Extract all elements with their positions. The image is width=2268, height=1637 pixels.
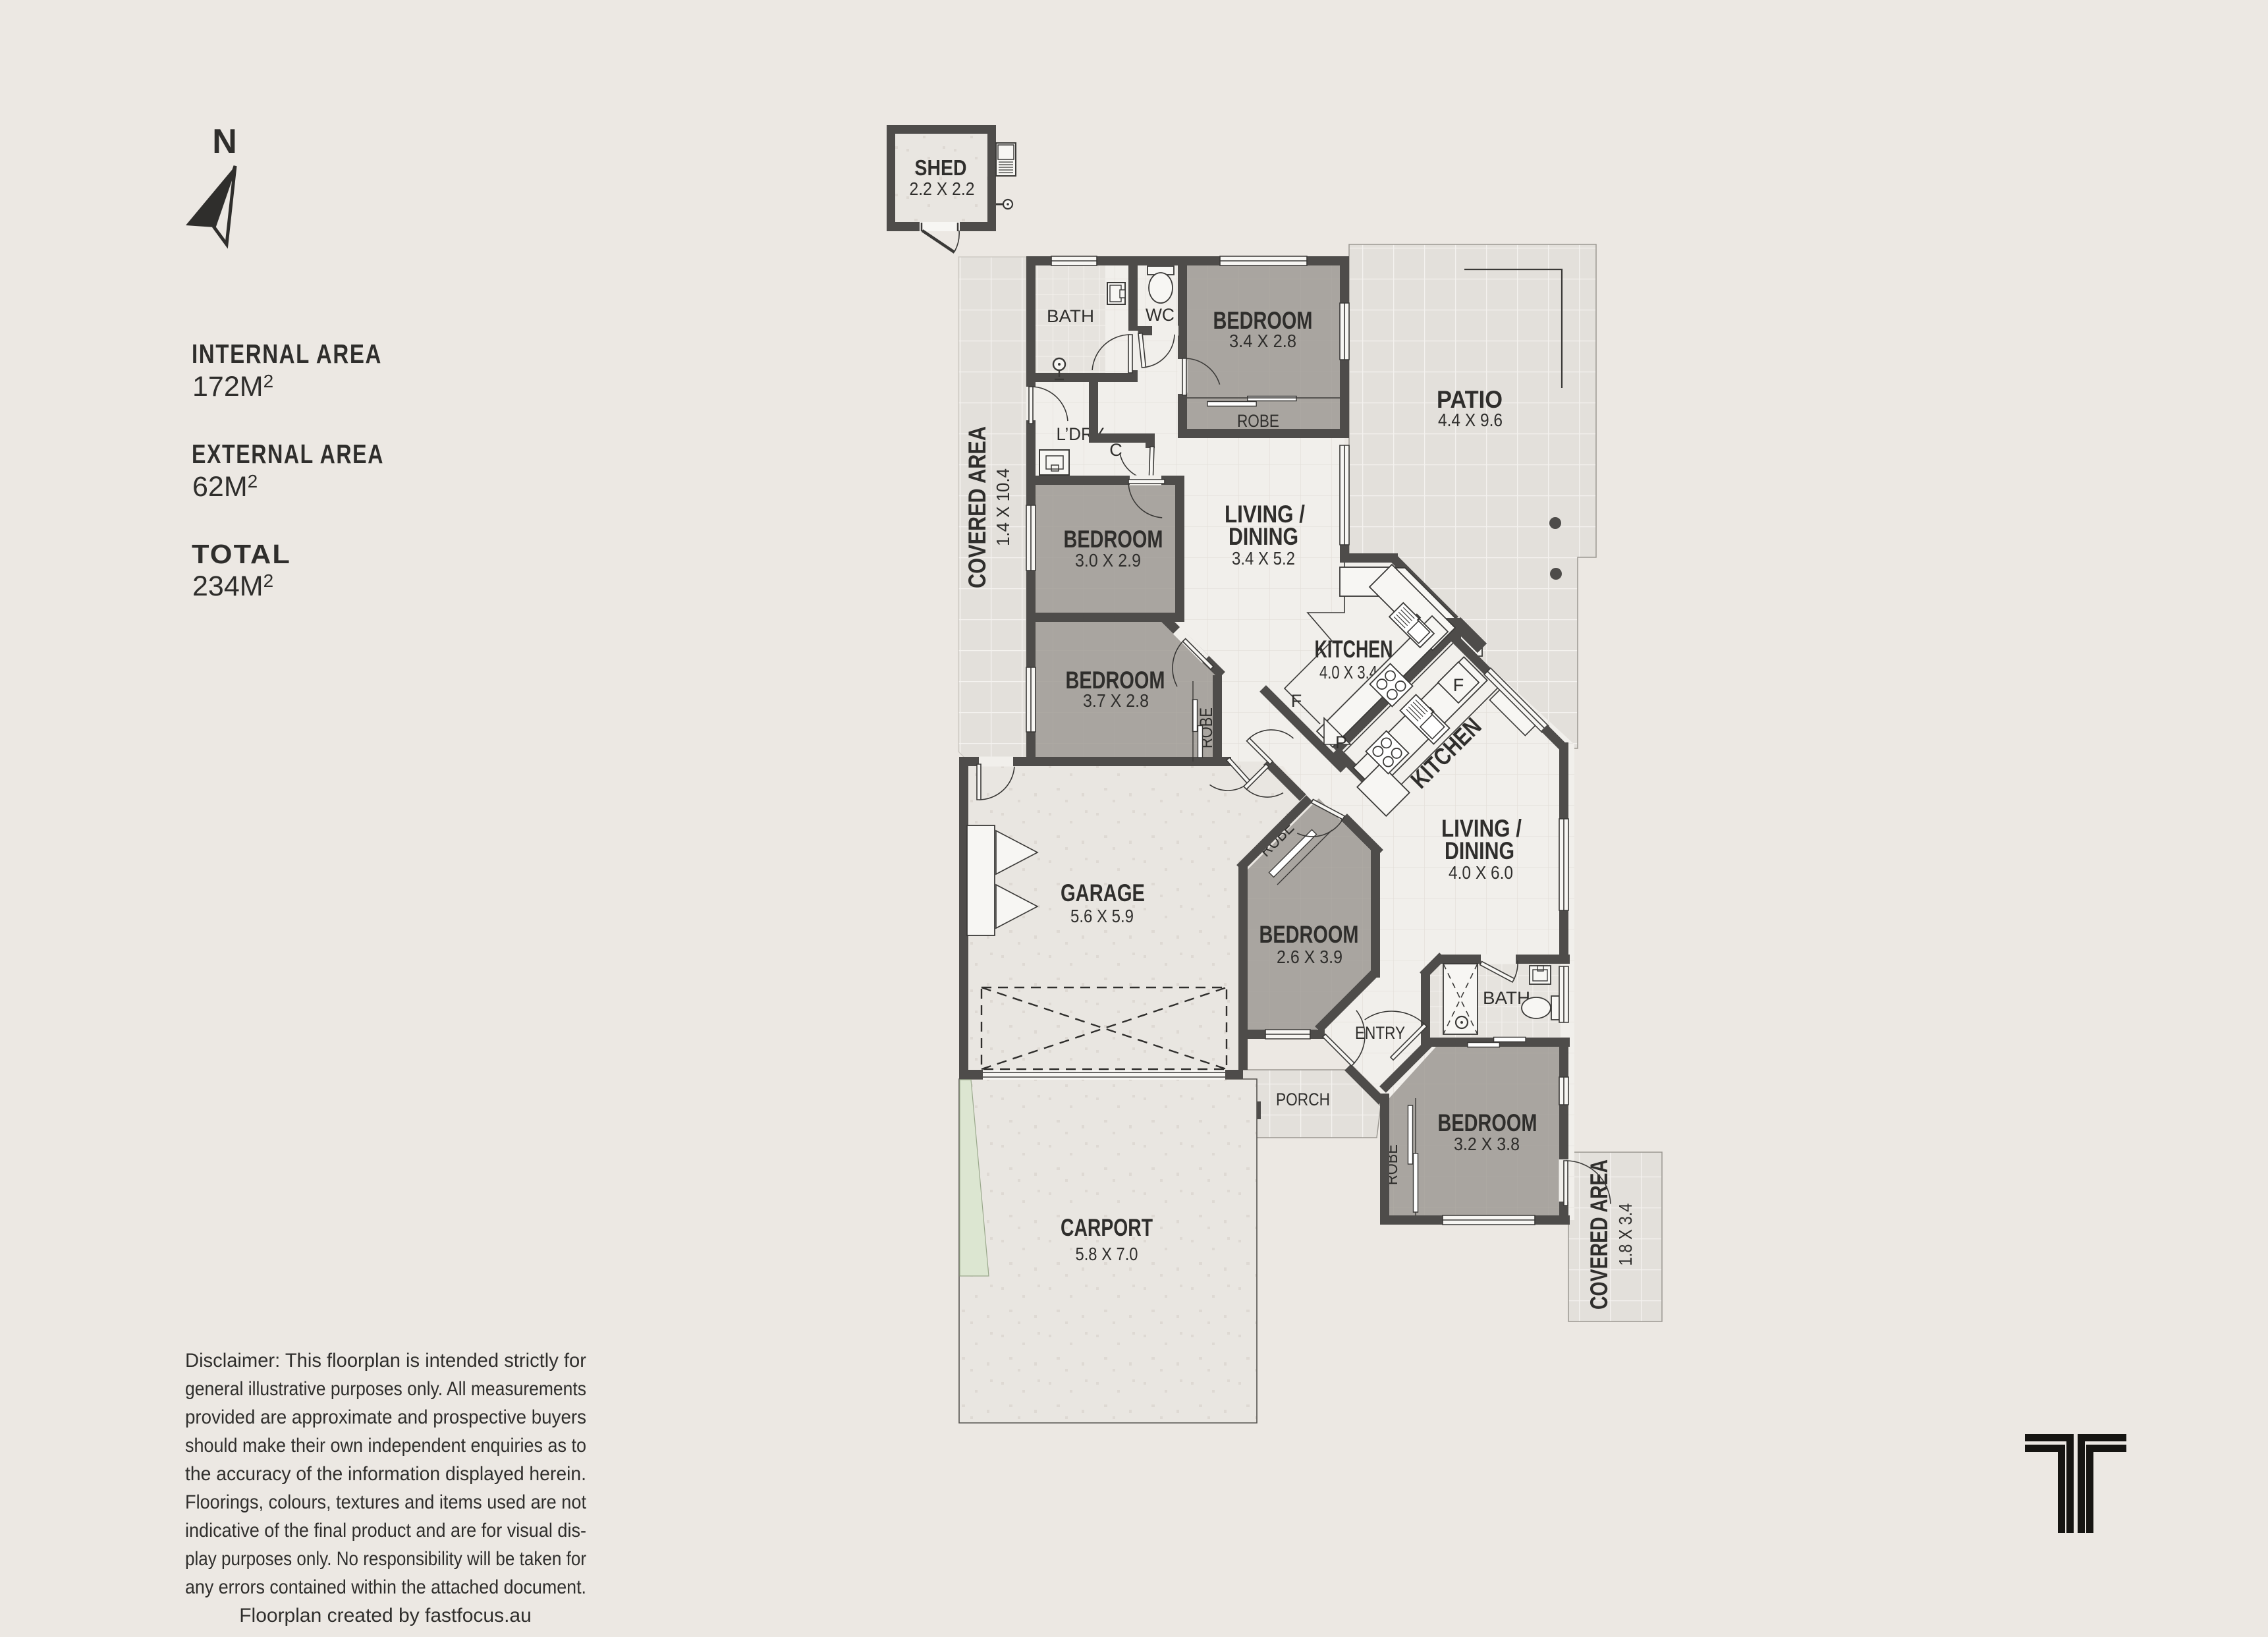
svg-text:F: F bbox=[1291, 691, 1302, 711]
svg-text:PATIO: PATIO bbox=[1437, 386, 1503, 413]
svg-text:KITCHEN: KITCHEN bbox=[1315, 636, 1393, 663]
svg-text:Floorings, colours, textures a: Floorings, colours, textures and items u… bbox=[185, 1491, 587, 1513]
svg-text:PORCH: PORCH bbox=[1276, 1090, 1330, 1109]
svg-text:2.6 X 3.9: 2.6 X 3.9 bbox=[1277, 947, 1342, 967]
svg-text:N: N bbox=[212, 123, 237, 161]
svg-text:the accuracy of the informatio: the accuracy of the information displaye… bbox=[185, 1463, 586, 1485]
svg-text:play purposes only. No respons: play purposes only. No responsibility wi… bbox=[185, 1548, 586, 1570]
svg-text:3.7 X 2.8: 3.7 X 2.8 bbox=[1083, 690, 1149, 711]
svg-text:4.4 X 9.6: 4.4 X 9.6 bbox=[1438, 410, 1503, 430]
svg-text:172M2: 172M2 bbox=[192, 371, 273, 402]
svg-text:should make their own independ: should make their own independent enquir… bbox=[185, 1435, 586, 1457]
svg-text:Floorplan created by fastfocus: Floorplan created by fastfocus.au bbox=[239, 1605, 532, 1626]
svg-text:P: P bbox=[1335, 733, 1347, 752]
svg-text:SHED: SHED bbox=[915, 155, 967, 180]
svg-text:F: F bbox=[1453, 675, 1464, 695]
svg-text:provided are approximate and p: provided are approximate and prospective… bbox=[185, 1406, 586, 1428]
svg-text:DINING: DINING bbox=[1445, 837, 1514, 864]
svg-text:COVERED AREA: COVERED AREA bbox=[1586, 1159, 1613, 1310]
svg-text:5.6 X 5.9: 5.6 X 5.9 bbox=[1070, 906, 1134, 926]
svg-text:TOTAL: TOTAL bbox=[192, 539, 291, 569]
svg-text:3.4 X 2.8: 3.4 X 2.8 bbox=[1229, 331, 1296, 351]
svg-text:5.8 X 7.0: 5.8 X 7.0 bbox=[1076, 1244, 1138, 1264]
svg-text:BEDROOM: BEDROOM bbox=[1438, 1109, 1537, 1136]
svg-text:1.8 X 3.4: 1.8 X 3.4 bbox=[1615, 1204, 1636, 1266]
svg-text:BEDROOM: BEDROOM bbox=[1259, 921, 1359, 948]
svg-text:DINING: DINING bbox=[1229, 523, 1298, 550]
svg-text:2.2 X 2.2: 2.2 X 2.2 bbox=[910, 179, 975, 199]
svg-text:1.4 X 10.4: 1.4 X 10.4 bbox=[993, 468, 1013, 546]
svg-text:INTERNAL AREA: INTERNAL AREA bbox=[192, 339, 382, 369]
svg-text:3.2 X 3.8: 3.2 X 3.8 bbox=[1454, 1134, 1520, 1154]
svg-text:Disclaimer: This floorplan is: Disclaimer: This floorplan is intended s… bbox=[185, 1350, 586, 1372]
svg-text:BEDROOM: BEDROOM bbox=[1213, 307, 1313, 334]
svg-text:ENTRY: ENTRY bbox=[1355, 1023, 1405, 1043]
svg-text:BATH: BATH bbox=[1047, 306, 1094, 326]
svg-text:BEDROOM: BEDROOM bbox=[1066, 667, 1165, 694]
svg-text:3.4 X 5.2: 3.4 X 5.2 bbox=[1232, 548, 1295, 569]
svg-text:3.0 X 2.9: 3.0 X 2.9 bbox=[1075, 550, 1141, 570]
svg-text:any errors contained within th: any errors contained within the attached… bbox=[185, 1576, 586, 1598]
svg-text:BEDROOM: BEDROOM bbox=[1064, 526, 1163, 553]
svg-text:ROBE: ROBE bbox=[1237, 411, 1279, 431]
svg-text:WC: WC bbox=[1146, 305, 1175, 325]
svg-text:CARPORT: CARPORT bbox=[1061, 1214, 1153, 1241]
svg-text:indicative of the final produc: indicative of the final product and are … bbox=[185, 1520, 586, 1541]
svg-text:GARAGE: GARAGE bbox=[1061, 879, 1145, 906]
svg-text:234M2: 234M2 bbox=[192, 570, 273, 602]
svg-text:COVERED AREA: COVERED AREA bbox=[964, 426, 991, 588]
svg-text:4.0 X 6.0: 4.0 X 6.0 bbox=[1449, 862, 1513, 883]
svg-text:EXTERNAL AREA: EXTERNAL AREA bbox=[192, 439, 384, 469]
svg-text:general illustrative purposes: general illustrative purposes only. All … bbox=[185, 1378, 586, 1400]
